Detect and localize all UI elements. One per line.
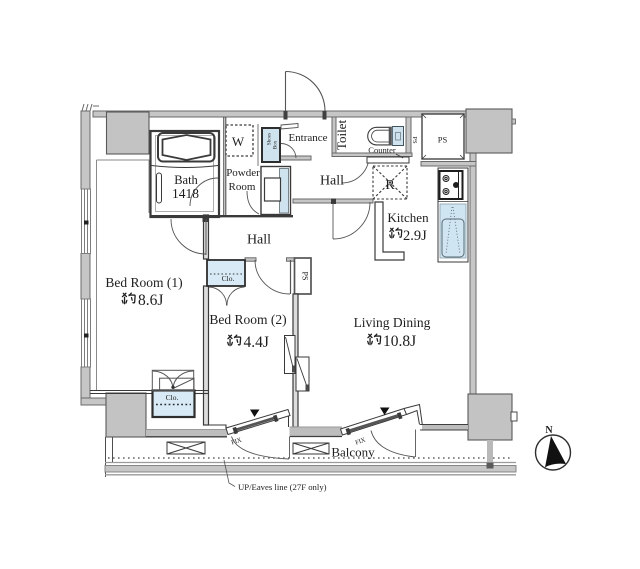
svg-text:PS: PS bbox=[301, 272, 310, 281]
svg-text:Hall: Hall bbox=[247, 233, 271, 248]
svg-text:Box: Box bbox=[273, 140, 279, 149]
svg-text:Balcony: Balcony bbox=[331, 445, 375, 460]
svg-text:UP/Eaves line (27F only): UP/Eaves line (27F only) bbox=[238, 482, 327, 492]
svg-text:Clo.: Clo. bbox=[166, 393, 179, 402]
svg-text:Living Dining: Living Dining bbox=[354, 315, 431, 330]
svg-text:Counter: Counter bbox=[368, 145, 396, 155]
svg-text:Powder: Powder bbox=[226, 167, 260, 179]
svg-text:Clo.: Clo. bbox=[222, 274, 235, 283]
svg-text:PS: PS bbox=[411, 136, 418, 144]
svg-text:Room: Room bbox=[229, 181, 256, 193]
svg-text:Bed Room (2): Bed Room (2) bbox=[209, 312, 286, 327]
svg-text:Bed Room (1): Bed Room (1) bbox=[105, 275, 182, 290]
svg-text:2.9J: 2.9J bbox=[403, 228, 427, 244]
svg-text:Entrance: Entrance bbox=[288, 132, 327, 144]
svg-text:Toilet: Toilet bbox=[334, 120, 349, 151]
svg-text:Hall: Hall bbox=[320, 174, 344, 189]
svg-text:W: W bbox=[232, 134, 245, 149]
svg-text:Kitchen: Kitchen bbox=[387, 210, 429, 225]
svg-text:Bath: Bath bbox=[174, 173, 198, 187]
svg-text:R: R bbox=[385, 178, 395, 193]
svg-text:N: N bbox=[545, 425, 553, 436]
svg-text:10.8J: 10.8J bbox=[383, 333, 416, 350]
svg-text:4.4J: 4.4J bbox=[244, 334, 269, 351]
svg-text:1418: 1418 bbox=[172, 186, 199, 201]
svg-text:PS: PS bbox=[438, 135, 448, 145]
svg-text:8.6J: 8.6J bbox=[138, 292, 163, 309]
